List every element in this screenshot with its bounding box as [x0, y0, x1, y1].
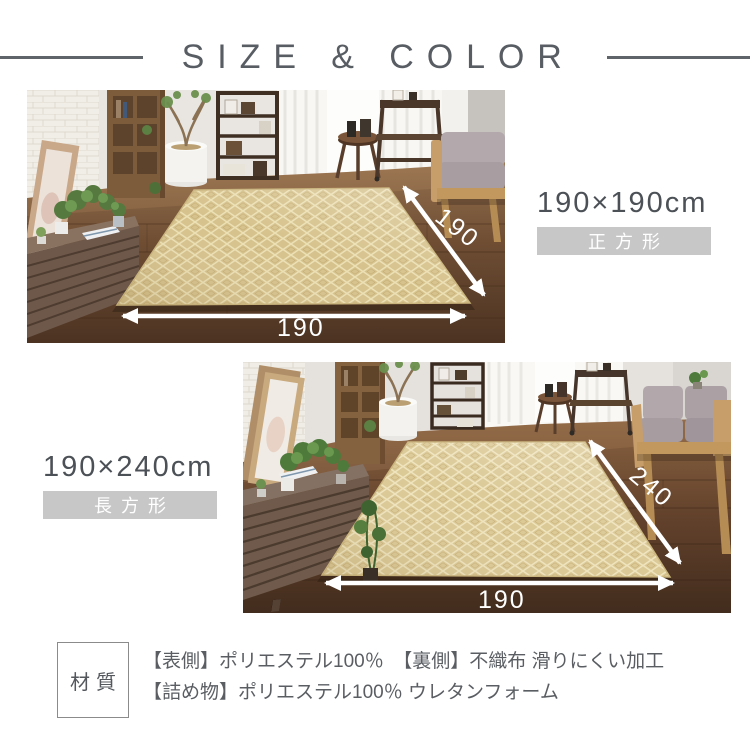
shape-badge: 正方形	[537, 227, 711, 255]
section-header: SIZE & COLOR	[0, 38, 750, 77]
size-value: 190×190cm	[537, 188, 711, 218]
material-description: 【表側】ポリエステル100％ 【裏側】不織布 滑りにくい加工 【詰め物】ポリエス…	[143, 646, 664, 708]
material-line-1: 【表側】ポリエステル100％ 【裏側】不織布 滑りにくい加工	[143, 646, 664, 677]
size-info-rect: 190×240cm 長方形	[43, 452, 217, 519]
material-label-box: 材質	[57, 642, 129, 718]
room-photo-rect-rug: 240 190	[243, 362, 731, 613]
room-scene-square-svg	[27, 90, 505, 343]
size-value: 190×240cm	[43, 452, 217, 482]
product-size-color-page: SIZE & COLOR	[0, 0, 750, 750]
header-rule-left	[0, 56, 143, 59]
page-title: SIZE & COLOR	[175, 38, 575, 77]
room-photo-square-rug: 190 190	[27, 90, 505, 343]
header-rule-right	[607, 56, 750, 59]
material-label: 材質	[64, 666, 122, 695]
material-line-2: 【詰め物】ポリエステル100％ ウレタンフォーム	[143, 677, 664, 708]
shape-badge: 長方形	[43, 491, 217, 519]
size-info-square: 190×190cm 正方形	[537, 188, 711, 255]
width-dimension-label: 190	[277, 314, 325, 343]
width-dimension-label: 190	[478, 586, 526, 613]
